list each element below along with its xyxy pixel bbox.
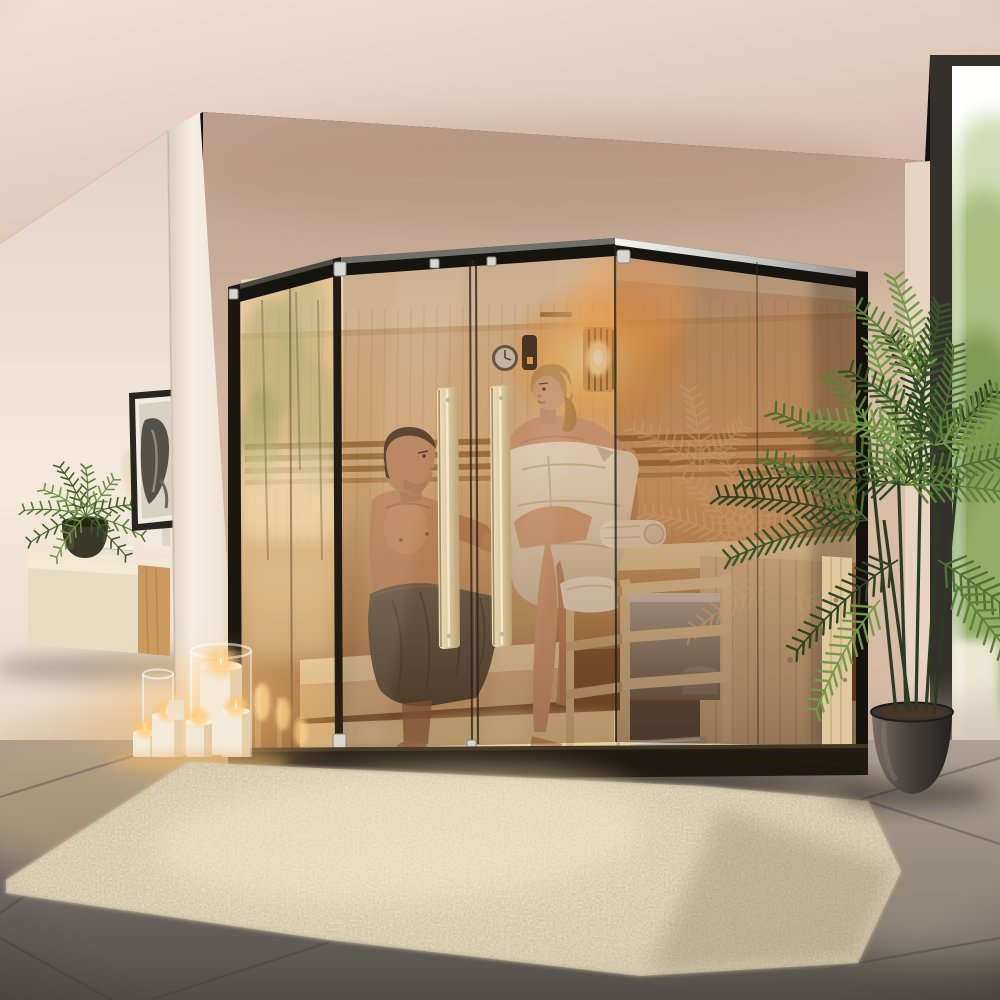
- vignette: [0, 0, 1000, 1000]
- scene-canvas: Photorealistic render of an indoor corne…: [0, 0, 1000, 1000]
- photo-scene: Photorealistic render of an indoor corne…: [0, 0, 1000, 1000]
